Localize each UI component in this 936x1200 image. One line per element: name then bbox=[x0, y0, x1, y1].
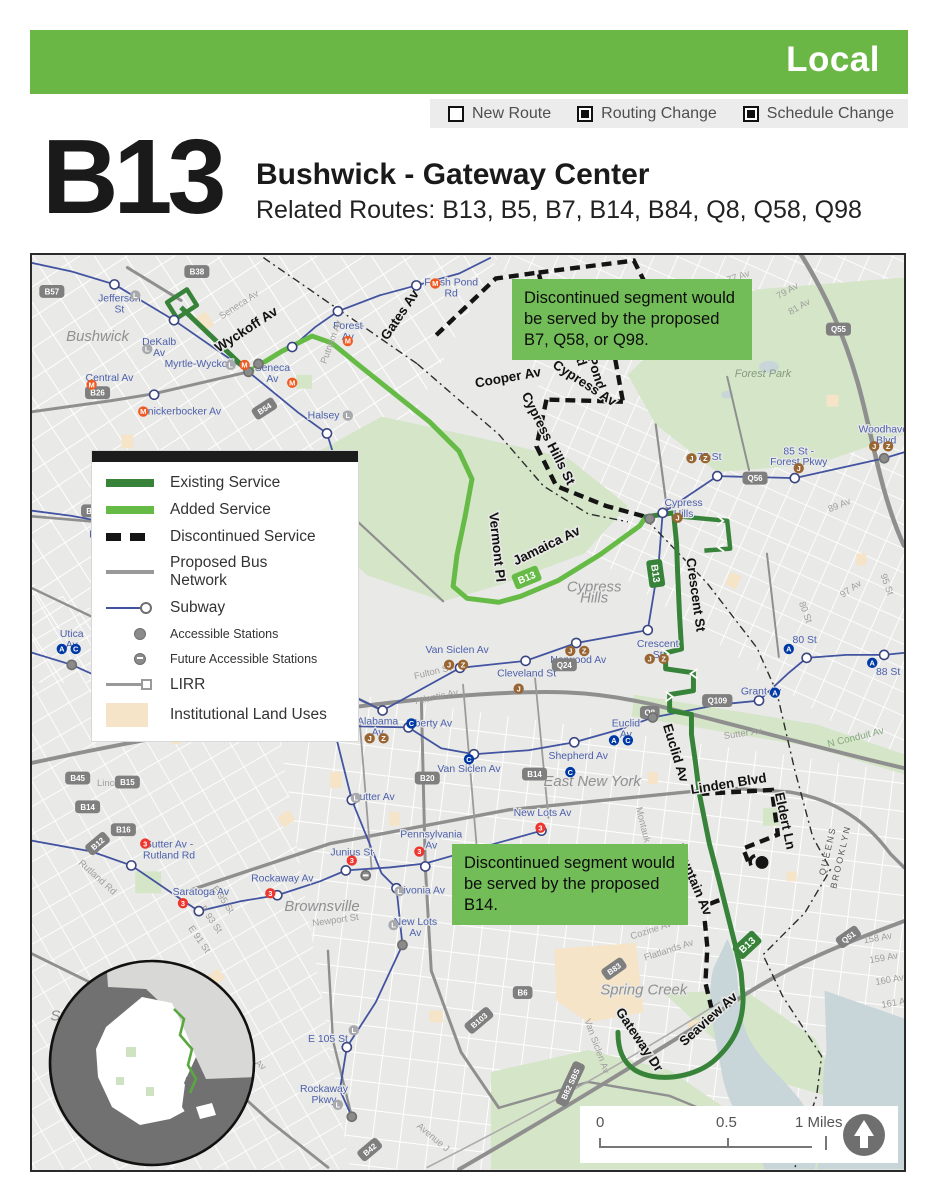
discontinued-terminal-loop bbox=[756, 856, 769, 869]
legend-item-existing: Existing Service bbox=[106, 474, 344, 492]
station-label: Sutter Av -Rutland Rd bbox=[143, 840, 195, 862]
svg-text:J: J bbox=[648, 655, 652, 664]
svg-text:L: L bbox=[352, 1026, 357, 1035]
route-name: Bushwick - Gateway Center bbox=[256, 158, 649, 192]
subway-station-marker bbox=[127, 861, 136, 870]
svg-text:Q24: Q24 bbox=[557, 661, 573, 670]
station-label: 88 St bbox=[876, 667, 900, 678]
borough-inset-map bbox=[46, 957, 258, 1169]
subway-line-bullet-J: J bbox=[565, 646, 575, 656]
callout-discontinued-north: Discontinued segment would be served by … bbox=[512, 279, 752, 360]
station-label: E 105 St bbox=[308, 1034, 348, 1045]
route-type-new: New Route bbox=[448, 105, 551, 123]
svg-text:Z: Z bbox=[381, 734, 386, 743]
bus-route-badge: Q56 bbox=[743, 472, 768, 485]
subway-line-bullet-M: M bbox=[287, 378, 297, 388]
subway-station-marker bbox=[570, 738, 579, 747]
accessible-station-marker bbox=[67, 660, 76, 669]
subway-station-marker bbox=[421, 862, 430, 871]
subway-line-bullet-Z: Z bbox=[883, 441, 893, 451]
svg-text:Z: Z bbox=[661, 655, 666, 664]
subway-station-marker bbox=[342, 1043, 351, 1052]
hood-label: East New York bbox=[543, 774, 642, 790]
subway-station-marker bbox=[169, 316, 178, 325]
route-type-legend: New Route Routing Change Schedule Change bbox=[430, 99, 908, 128]
discontinued-service-swatch bbox=[106, 533, 154, 541]
legend-item-institutional: Institutional Land Uses bbox=[106, 703, 344, 727]
accessible-station-marker bbox=[645, 514, 654, 523]
svg-text:L: L bbox=[391, 921, 396, 930]
subway-line-bullet-3: 3 bbox=[535, 823, 545, 833]
station-label: Cleveland St bbox=[497, 669, 556, 680]
route-type-schedule-change: Schedule Change bbox=[743, 105, 894, 123]
legend-item-subway: Subway bbox=[106, 599, 344, 617]
station-label: Van Siclen Av bbox=[437, 764, 501, 775]
legend-item-discontinued: Discontinued Service bbox=[106, 528, 344, 546]
subway-line-bullet-J: J bbox=[513, 683, 523, 693]
page-title-route-id: B13 bbox=[42, 124, 221, 230]
svg-text:M: M bbox=[88, 380, 94, 389]
bus-route-badge: B15 bbox=[115, 776, 140, 789]
subway-line-bullet-A: A bbox=[867, 658, 877, 668]
new-route-icon bbox=[448, 106, 464, 122]
subway-line-bullet-L: L bbox=[333, 1100, 343, 1110]
svg-text:3: 3 bbox=[181, 899, 185, 908]
svg-text:A: A bbox=[772, 688, 778, 697]
subway-station-marker bbox=[713, 472, 722, 481]
station-label: 80 St bbox=[793, 635, 817, 646]
svg-text:A: A bbox=[611, 736, 617, 745]
subway-line-bullet-A: A bbox=[784, 644, 794, 654]
svg-text:A: A bbox=[59, 645, 65, 654]
svg-text:J: J bbox=[568, 647, 572, 656]
svg-text:J: J bbox=[447, 661, 451, 670]
subway-station-marker bbox=[378, 706, 387, 715]
station-label: Livonia Av bbox=[398, 885, 446, 896]
subway-line-bullet-Z: Z bbox=[458, 660, 468, 670]
subway-station-marker bbox=[754, 696, 763, 705]
svg-text:Q55: Q55 bbox=[831, 325, 847, 334]
svg-text:J: J bbox=[797, 464, 801, 473]
subway-station-marker bbox=[194, 907, 203, 916]
station-label: Knickerbocker Av bbox=[141, 407, 222, 418]
svg-text:Q109: Q109 bbox=[708, 697, 728, 706]
svg-text:A: A bbox=[870, 659, 876, 668]
svg-text:L: L bbox=[133, 291, 138, 300]
bus-route-badge: B16 bbox=[111, 823, 136, 836]
svg-text:M: M bbox=[432, 279, 438, 288]
subway-line-bullet-M: M bbox=[138, 406, 148, 416]
accessible-station-icon bbox=[134, 628, 146, 640]
svg-text:M: M bbox=[289, 378, 295, 387]
scale-bar: 0 0.5 1 Miles bbox=[580, 1106, 898, 1163]
svg-text:B15: B15 bbox=[120, 778, 135, 787]
subway-station-marker bbox=[288, 342, 297, 351]
subway-line-bullet-M: M bbox=[430, 278, 440, 288]
svg-text:M: M bbox=[345, 337, 351, 346]
institutional-land-swatch bbox=[106, 703, 148, 727]
bus-route-badge: B57 bbox=[39, 285, 64, 298]
svg-text:C: C bbox=[568, 768, 574, 777]
bus-route-badge: Q24 bbox=[552, 658, 577, 671]
proposed-network-swatch bbox=[106, 570, 154, 574]
subway-station-marker bbox=[150, 390, 159, 399]
svg-text:B45: B45 bbox=[70, 774, 85, 783]
subway-line-bullet-C: C bbox=[565, 767, 575, 777]
subway-line-bullet-J: J bbox=[794, 463, 804, 473]
added-service-swatch bbox=[106, 506, 154, 514]
station-label: New Lots Av bbox=[514, 808, 572, 819]
subway-line-bullet-3: 3 bbox=[414, 846, 424, 856]
svg-text:3: 3 bbox=[268, 889, 272, 898]
station-label: Van Siclen Av bbox=[425, 645, 489, 656]
svg-text:L: L bbox=[228, 361, 233, 370]
svg-text:3: 3 bbox=[417, 847, 421, 856]
subway-station-marker bbox=[658, 508, 667, 517]
svg-text:M: M bbox=[241, 361, 247, 370]
accessible-station-marker bbox=[880, 454, 889, 463]
route-type-routing-change: Routing Change bbox=[577, 105, 717, 123]
subway-line-bullet-C: C bbox=[623, 735, 633, 745]
subway-line-bullet-L: L bbox=[388, 920, 398, 930]
subway-line-bullet-Z: Z bbox=[579, 646, 589, 656]
subway-line-bullet-L: L bbox=[343, 410, 353, 420]
subway-line-bullet-L: L bbox=[225, 360, 235, 370]
svg-text:Q56: Q56 bbox=[748, 474, 764, 483]
lirr-line-swatch bbox=[106, 683, 146, 686]
subway-line-bullet-3: 3 bbox=[140, 838, 150, 848]
subway-line-bullet-M: M bbox=[86, 380, 96, 390]
accessible-station-marker bbox=[347, 1112, 356, 1121]
subway-station-marker bbox=[412, 281, 421, 290]
subway-line-bullet-J: J bbox=[444, 660, 454, 670]
subway-line-bullet-L: L bbox=[142, 344, 152, 354]
svg-text:B14: B14 bbox=[80, 803, 95, 812]
subway-line-bullet-M: M bbox=[239, 360, 249, 370]
legend-item-added: Added Service bbox=[106, 501, 344, 519]
accessible-station-marker bbox=[254, 359, 263, 368]
future-accessible-station-icon bbox=[134, 653, 146, 665]
bus-route-badge: Q109 bbox=[702, 694, 732, 707]
svg-text:C: C bbox=[466, 755, 472, 764]
subway-line-bullet-L: L bbox=[394, 886, 404, 896]
svg-text:L: L bbox=[145, 345, 150, 354]
bus-route-badge: B6 bbox=[513, 986, 533, 999]
subway-station-marker bbox=[880, 650, 889, 659]
svg-text:B6: B6 bbox=[518, 989, 529, 998]
subway-line-bullet-3: 3 bbox=[265, 888, 275, 898]
svg-text:L: L bbox=[346, 411, 351, 420]
subway-line-bullet-J: J bbox=[672, 513, 682, 523]
schedule-change-icon bbox=[743, 106, 759, 122]
routing-change-icon bbox=[577, 106, 593, 122]
existing-service-swatch bbox=[106, 479, 154, 487]
svg-text:J: J bbox=[675, 514, 679, 523]
svg-text:J: J bbox=[517, 684, 521, 693]
station-label: Shepherd Av bbox=[549, 751, 609, 762]
subway-line-bullet-M: M bbox=[343, 336, 353, 346]
hood-label: Bushwick bbox=[66, 329, 130, 345]
svg-text:J: J bbox=[368, 734, 372, 743]
svg-text:C: C bbox=[73, 645, 79, 654]
subway-station-marker bbox=[790, 474, 799, 483]
service-type-label: Local bbox=[786, 40, 880, 80]
accessible-station-marker bbox=[648, 713, 657, 722]
header-banner: Local bbox=[30, 30, 908, 94]
legend-item-future-accessible: Future Accessible Stations bbox=[106, 651, 344, 667]
svg-text:A: A bbox=[786, 645, 792, 654]
bus-route-badge: B14 bbox=[75, 800, 100, 813]
route-type-label: Schedule Change bbox=[767, 105, 894, 123]
bus-route-badge: B14 bbox=[522, 768, 547, 781]
subway-line-bullet-A: A bbox=[770, 687, 780, 697]
svg-text:Z: Z bbox=[461, 661, 466, 670]
subway-station-marker bbox=[643, 625, 652, 634]
legend-top-bar bbox=[92, 451, 358, 462]
subway-station-marker bbox=[521, 656, 530, 665]
bus-route-badge: B45 bbox=[65, 772, 90, 785]
subway-station-marker bbox=[110, 280, 119, 289]
bus-route-badge: B20 bbox=[415, 772, 440, 785]
subway-line-bullet-3: 3 bbox=[178, 898, 188, 908]
subway-line-bullet-A: A bbox=[57, 644, 67, 654]
subway-line-bullet-J: J bbox=[869, 441, 879, 451]
subway-station-marker bbox=[572, 638, 581, 647]
svg-text:L: L bbox=[353, 794, 358, 803]
subway-line-bullet-J: J bbox=[686, 453, 696, 463]
svg-text:Z: Z bbox=[582, 647, 587, 656]
subway-line-bullet-J: J bbox=[645, 654, 655, 664]
map-legend: Existing Service Added Service Discontin… bbox=[92, 451, 358, 741]
svg-text:3: 3 bbox=[538, 823, 542, 832]
subway-line-bullet-Z: Z bbox=[378, 733, 388, 743]
svg-text:B38: B38 bbox=[190, 268, 205, 277]
station-label: Myrtle-Wyckoff bbox=[165, 359, 234, 370]
svg-text:B26: B26 bbox=[90, 389, 105, 398]
hood-label: Spring Creek bbox=[600, 983, 688, 999]
subway-station-marker bbox=[333, 307, 342, 316]
svg-text:B16: B16 bbox=[116, 826, 131, 835]
svg-text:C: C bbox=[625, 736, 631, 745]
svg-text:B14: B14 bbox=[527, 770, 542, 779]
svg-text:J: J bbox=[872, 442, 876, 451]
subway-line-bullet-A: A bbox=[609, 735, 619, 745]
subway-line-bullet-C: C bbox=[71, 644, 81, 654]
route-type-label: New Route bbox=[472, 105, 551, 123]
subway-line-bullet-J: J bbox=[365, 733, 375, 743]
subway-station-marker bbox=[341, 866, 350, 875]
route-map[interactable]: Wyckoff AvGates AvFresh PondRdCooper AvC… bbox=[30, 253, 906, 1172]
subway-line-bullet-Z: Z bbox=[700, 453, 710, 463]
bus-route-badge: B38 bbox=[184, 265, 209, 278]
legend-item-accessible: Accessible Stations bbox=[106, 626, 344, 642]
related-routes: Related Routes: B13, B5, B7, B14, B84, Q… bbox=[256, 196, 862, 225]
scale-bar-graphic bbox=[580, 1106, 898, 1163]
svg-text:L: L bbox=[336, 1100, 341, 1109]
svg-text:L: L bbox=[397, 887, 402, 896]
subway-line-bullet-L: L bbox=[130, 290, 140, 300]
svg-text:B57: B57 bbox=[45, 287, 60, 296]
lirr-station-icon bbox=[141, 679, 152, 690]
callout-discontinued-south: Discontinued segment would be served by … bbox=[452, 844, 688, 925]
subway-line-bullet-C: C bbox=[464, 754, 474, 764]
svg-text:3: 3 bbox=[350, 856, 354, 865]
subway-station-icon bbox=[140, 602, 152, 614]
svg-text:B20: B20 bbox=[420, 774, 435, 783]
subway-line-bullet-Z: Z bbox=[658, 654, 668, 664]
subway-line-bullet-L: L bbox=[351, 793, 361, 803]
station-label: Rockaway Av bbox=[251, 873, 314, 884]
subway-line-bullet-3: 3 bbox=[347, 855, 357, 865]
subway-station-marker bbox=[802, 653, 811, 662]
svg-text:J: J bbox=[689, 454, 693, 463]
subway-line-bullet-C: C bbox=[406, 718, 416, 728]
hood-label: Brownsville bbox=[284, 899, 359, 915]
subway-station-marker bbox=[322, 429, 331, 438]
svg-text:Z: Z bbox=[886, 442, 891, 451]
svg-text:Z: Z bbox=[703, 454, 708, 463]
legend-item-proposed: Proposed Bus Network bbox=[106, 554, 344, 590]
bus-route-badge: Q55 bbox=[826, 323, 851, 336]
park-label: Forest Park bbox=[735, 368, 792, 380]
svg-text:3: 3 bbox=[143, 839, 147, 848]
legend-item-lirr: LIRR bbox=[106, 676, 344, 694]
svg-text:M: M bbox=[140, 407, 146, 416]
page: Local New Route Routing Change Schedule … bbox=[0, 0, 936, 1200]
accessible-station-marker bbox=[398, 940, 407, 949]
svg-text:C: C bbox=[409, 719, 415, 728]
route-type-label: Routing Change bbox=[601, 105, 717, 123]
subway-line-bullet-L: L bbox=[349, 1025, 359, 1035]
